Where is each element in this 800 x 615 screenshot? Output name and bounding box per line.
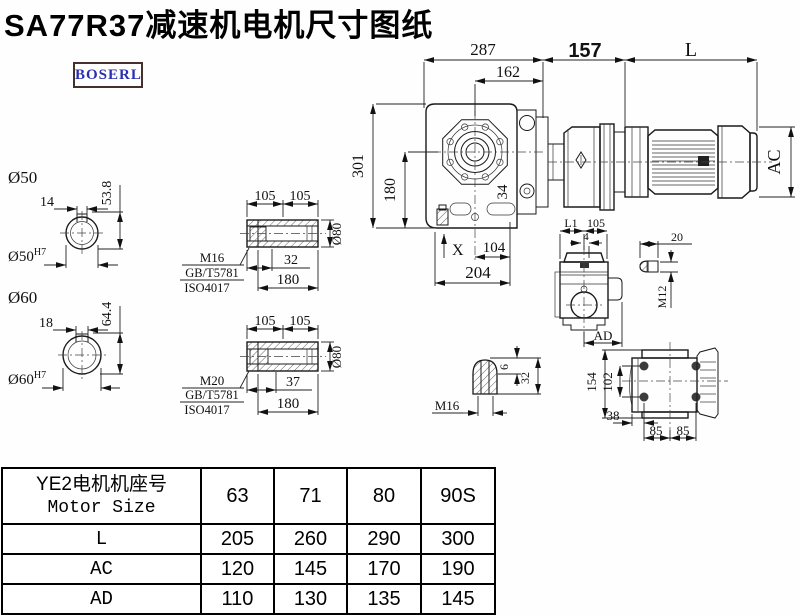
table-cell: 290 <box>347 524 421 554</box>
dim-287: 287 <box>470 40 496 59</box>
hs2-length: 180 <box>277 396 300 412</box>
table-row-AD: AD 110 130 135 145 <box>2 584 495 614</box>
row-label-AD: AD <box>2 584 201 614</box>
shaft60-label: Ø60 <box>8 288 37 307</box>
dim-4: 4 <box>583 231 589 243</box>
dim-64.4: 64.4 <box>100 302 115 327</box>
bolt-hole <box>640 362 649 371</box>
row-label-L: L <box>2 524 201 554</box>
dim-L: L <box>685 39 697 61</box>
table-cell: 135 <box>347 584 421 614</box>
motor-side-view <box>548 126 772 198</box>
dim-6: 6 <box>497 364 511 370</box>
dim-38: 38 <box>607 408 620 423</box>
plug-detail: M16 6 32 <box>432 346 541 416</box>
motor-dimension-table: YE2电机机座号 Motor Size 63 71 80 90S L 205 2… <box>1 467 496 615</box>
row-label-AC: AC <box>2 554 201 584</box>
dim-20: 20 <box>671 230 683 244</box>
dim-204: 204 <box>465 263 491 282</box>
table-cell: 145 <box>421 584 495 614</box>
dim-85b: 85 <box>677 423 690 438</box>
table-row-L: L 205 260 290 300 <box>2 524 495 554</box>
table-cell: 190 <box>421 554 495 584</box>
hollow-shaft-1: 105 105 M16 GB/T5781 ISO4017 32 180 Ø80 <box>180 189 344 295</box>
hs2-dim-b: 105 <box>290 314 311 329</box>
dim-bore-60: Ø60H7 <box>8 370 46 388</box>
dim-key50: 14 <box>40 195 54 210</box>
dim-154: 154 <box>584 372 599 392</box>
header-motor-size: YE2电机机座号 Motor Size <box>2 468 201 524</box>
hs2-depth: 37 <box>286 375 300 390</box>
table-header-row: YE2电机机座号 Motor Size 63 71 80 90S <box>2 468 495 524</box>
header-motor-size-en: Motor Size <box>3 497 200 519</box>
dim-AD: AD <box>594 328 613 343</box>
gearbox-side-view: L1 105 4 AD <box>555 216 622 347</box>
bolt-hole <box>692 362 701 371</box>
table-row-AC: AC 120 145 170 190 <box>2 554 495 584</box>
col-header-90S: 90S <box>421 468 495 524</box>
motor-adapter <box>548 124 625 210</box>
hs1-dim-b: 105 <box>290 189 311 204</box>
table-cell: 110 <box>201 584 274 614</box>
dim-301: 301 <box>350 154 367 178</box>
table-cell: 170 <box>347 554 421 584</box>
dim-X: X <box>452 242 464 259</box>
table-cell: 130 <box>274 584 347 614</box>
hs2-std1: GB/T5781 <box>185 388 238 402</box>
table-cell: 300 <box>421 524 495 554</box>
table-cell: 205 <box>201 524 274 554</box>
hs1-length: 180 <box>277 272 300 288</box>
dim-AC: AC <box>764 149 784 174</box>
dim-32-plug: 32 <box>518 372 532 384</box>
shaft-section-60: Ø60 18 64.4 Ø60H7 <box>8 288 123 391</box>
dim-M16-plug: M16 <box>435 398 460 413</box>
drain-plug <box>437 209 448 225</box>
table-cell: 145 <box>274 554 347 584</box>
table-cell: 120 <box>201 554 274 584</box>
dim-104: 104 <box>483 240 506 256</box>
dim-bore-50: Ø50H7 <box>8 247 46 265</box>
dim-L1: L1 <box>564 216 577 230</box>
shaft50-label: Ø50 <box>8 168 37 187</box>
hs2-dim-a: 105 <box>255 314 276 329</box>
dim-105-side: 105 <box>587 216 605 230</box>
hs2-thread: M20 <box>200 373 225 388</box>
col-header-80: 80 <box>347 468 421 524</box>
bolt-hole <box>692 393 701 402</box>
hs2-dia: Ø80 <box>329 346 344 368</box>
hs1-std1: GB/T5781 <box>185 266 238 280</box>
dim-M12: M12 <box>655 286 669 309</box>
hollow-shaft-2: 105 105 M20 GB/T5781 ISO4017 37 180 Ø80 <box>180 314 344 417</box>
key-detail: 20 M12 <box>640 230 692 308</box>
dim-85a: 85 <box>650 423 663 438</box>
hs1-dim-a: 105 <box>255 189 276 204</box>
col-header-63: 63 <box>201 468 274 524</box>
bolt-hole <box>640 393 649 402</box>
header-motor-size-cn: YE2电机机座号 <box>3 473 200 497</box>
dim-34: 34 <box>495 184 511 200</box>
fan-cover-fins <box>700 362 716 402</box>
hs1-std2: ISO4017 <box>184 281 229 295</box>
dim-157: 157 <box>568 40 601 62</box>
flange-rear-view: 154 102 38 85 85 <box>584 342 728 441</box>
dim-102: 102 <box>600 372 615 392</box>
hs1-dia: Ø80 <box>329 223 344 245</box>
hs2-std2: ISO4017 <box>184 403 229 417</box>
hs1-thread: M16 <box>200 250 225 265</box>
shaft-section-50: Ø50 14 53.8 Ø50H7 <box>8 168 123 268</box>
motor-terminal-mark <box>698 156 709 166</box>
hs1-depth: 32 <box>284 253 298 268</box>
main-view-dimensions: 287 162 157 L 301 180 X 104 204 34 AC <box>350 39 795 286</box>
col-header-71: 71 <box>274 468 347 524</box>
dim-162: 162 <box>496 64 520 81</box>
dim-key60: 18 <box>39 316 53 331</box>
dim-53.8: 53.8 <box>100 181 115 206</box>
table-cell: 260 <box>274 524 347 554</box>
dim-180: 180 <box>382 178 399 202</box>
